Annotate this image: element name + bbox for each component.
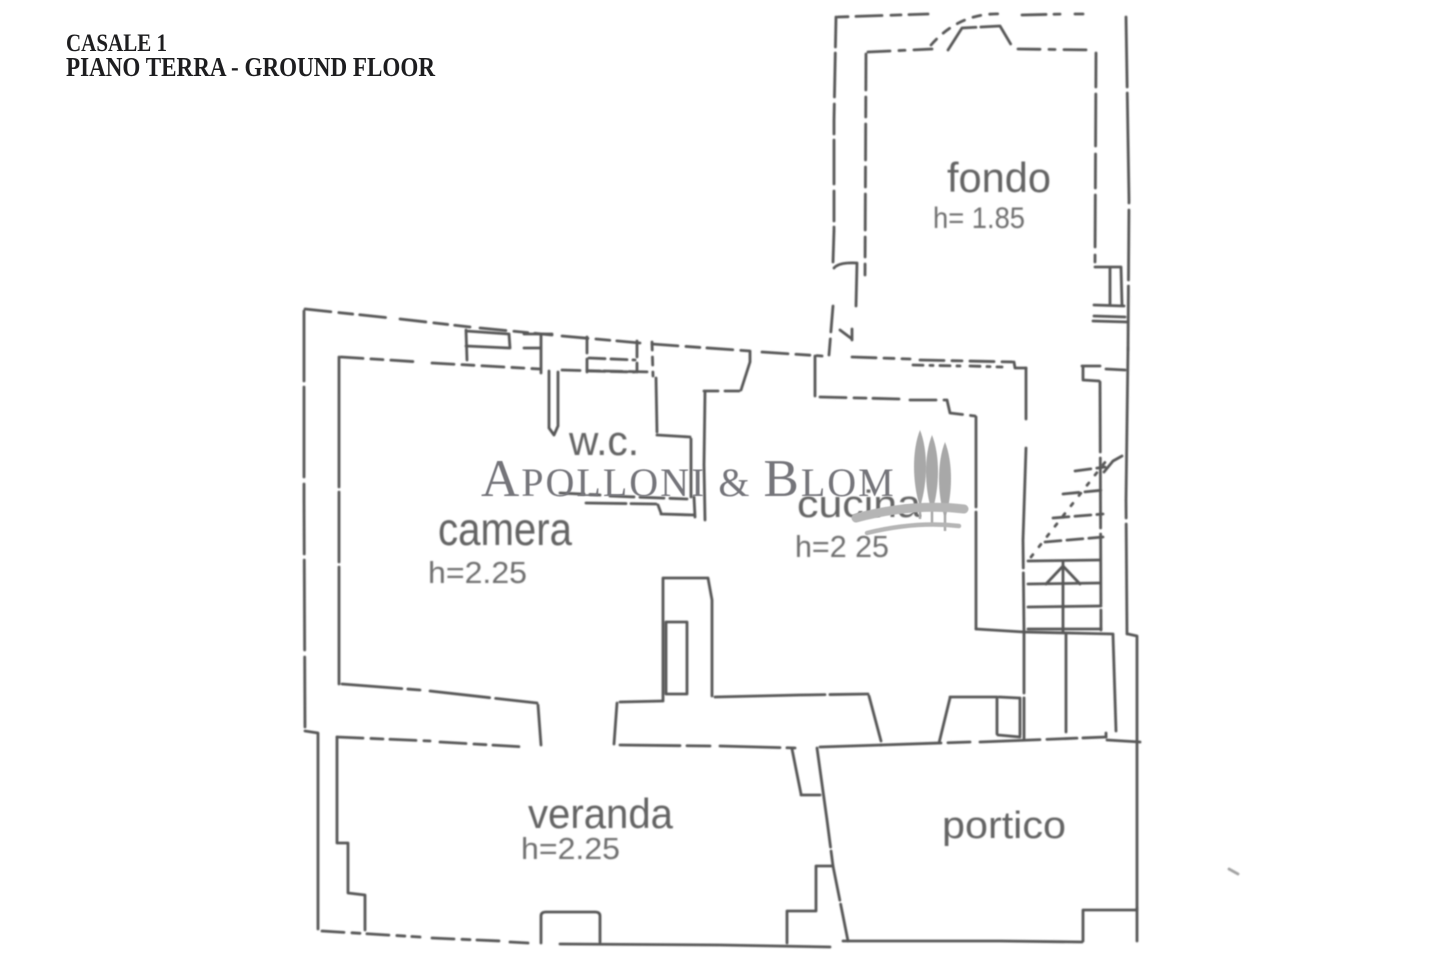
svg-text:fondo: fondo: [947, 154, 1051, 201]
svg-text:h=2.25: h=2.25: [521, 831, 620, 866]
svg-text:h=2 25: h=2 25: [795, 529, 889, 564]
svg-text:veranda: veranda: [528, 790, 674, 837]
svg-text:h= 1.85: h= 1.85: [933, 202, 1025, 235]
svg-text:w.c.: w.c.: [568, 417, 639, 464]
svg-text:camera: camera: [438, 503, 572, 555]
svg-text:APOLLONI & BLOM: APOLLONI & BLOM: [481, 450, 896, 508]
svg-text:PIANO TERRA - GROUND FLOOR: PIANO TERRA - GROUND FLOOR: [66, 52, 435, 82]
svg-text:h=2.25: h=2.25: [428, 555, 527, 590]
svg-text:portico: portico: [942, 805, 1066, 847]
